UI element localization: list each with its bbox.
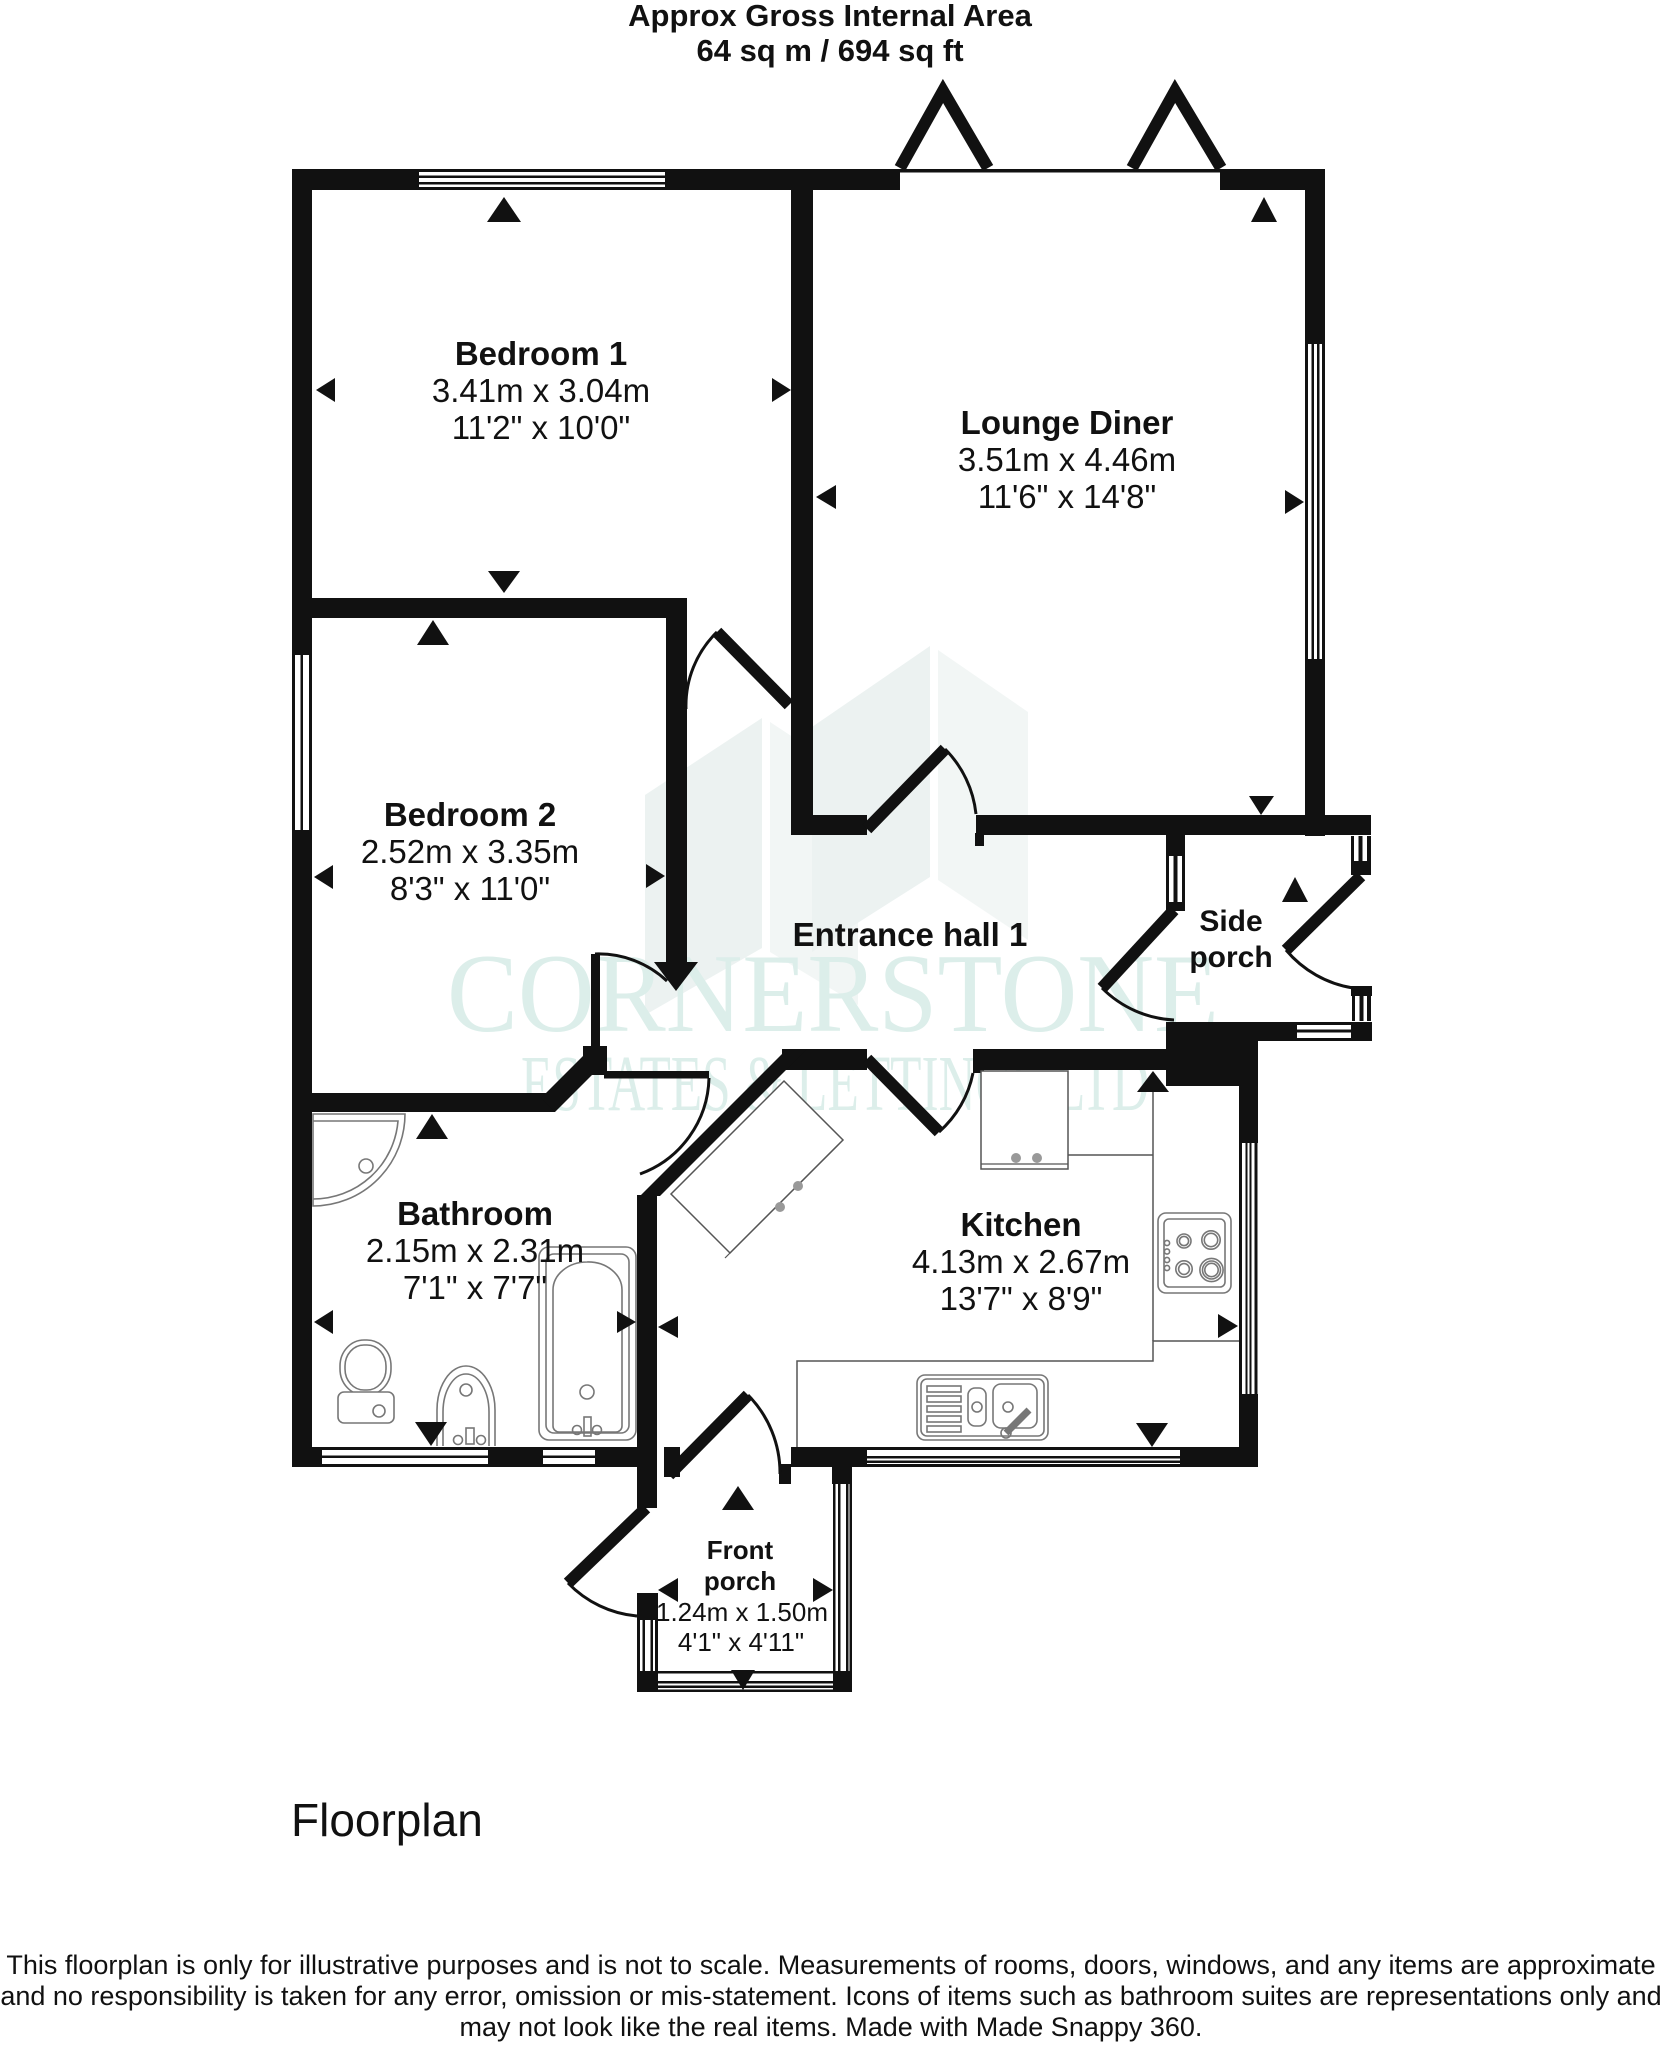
svg-text:Floorplan: Floorplan [291, 1794, 483, 1846]
svg-text:Bathroom: Bathroom [397, 1195, 553, 1232]
svg-text:4'1" x 4'11": 4'1" x 4'11" [678, 1627, 804, 1657]
svg-text:This floorplan is only for ill: This floorplan is only for illustrative … [6, 1950, 1655, 1980]
svg-text:11'2" x 10'0": 11'2" x 10'0" [452, 409, 631, 446]
svg-text:3.51m x 4.46m: 3.51m x 4.46m [958, 441, 1176, 478]
svg-text:Approx Gross Internal Area: Approx Gross Internal Area [628, 0, 1032, 33]
svg-text:Lounge Diner: Lounge Diner [961, 404, 1174, 441]
svg-text:Side: Side [1199, 905, 1262, 938]
svg-text:and no responsibility is taken: and no responsibility is taken for any e… [0, 1981, 1661, 2011]
svg-text:2.52m x 3.35m: 2.52m x 3.35m [361, 833, 579, 870]
svg-text:Kitchen: Kitchen [960, 1206, 1081, 1243]
svg-text:7'1" x 7'7": 7'1" x 7'7" [403, 1269, 547, 1306]
svg-text:64 sq m / 694 sq ft: 64 sq m / 694 sq ft [696, 33, 963, 68]
svg-text:13'7" x 8'9": 13'7" x 8'9" [940, 1280, 1103, 1317]
svg-text:Bedroom 2: Bedroom 2 [384, 796, 556, 833]
svg-text:8'3" x 11'0": 8'3" x 11'0" [390, 870, 550, 907]
svg-text:porch: porch [1189, 941, 1272, 974]
svg-text:may not look like the real ite: may not look like the real items. Made w… [460, 2012, 1203, 2042]
svg-text:porch: porch [704, 1566, 776, 1596]
svg-text:Front: Front [707, 1535, 774, 1565]
svg-text:2.15m x 2.31m: 2.15m x 2.31m [366, 1232, 584, 1269]
svg-text:1.24m x 1.50m: 1.24m x 1.50m [656, 1597, 828, 1627]
svg-text:Entrance hall 1: Entrance hall 1 [793, 916, 1028, 953]
svg-text:Bedroom 1: Bedroom 1 [455, 335, 627, 372]
svg-text:4.13m x 2.67m: 4.13m x 2.67m [912, 1243, 1130, 1280]
svg-text:11'6" x 14'8": 11'6" x 14'8" [978, 478, 1157, 515]
svg-text:3.41m x 3.04m: 3.41m x 3.04m [432, 372, 650, 409]
